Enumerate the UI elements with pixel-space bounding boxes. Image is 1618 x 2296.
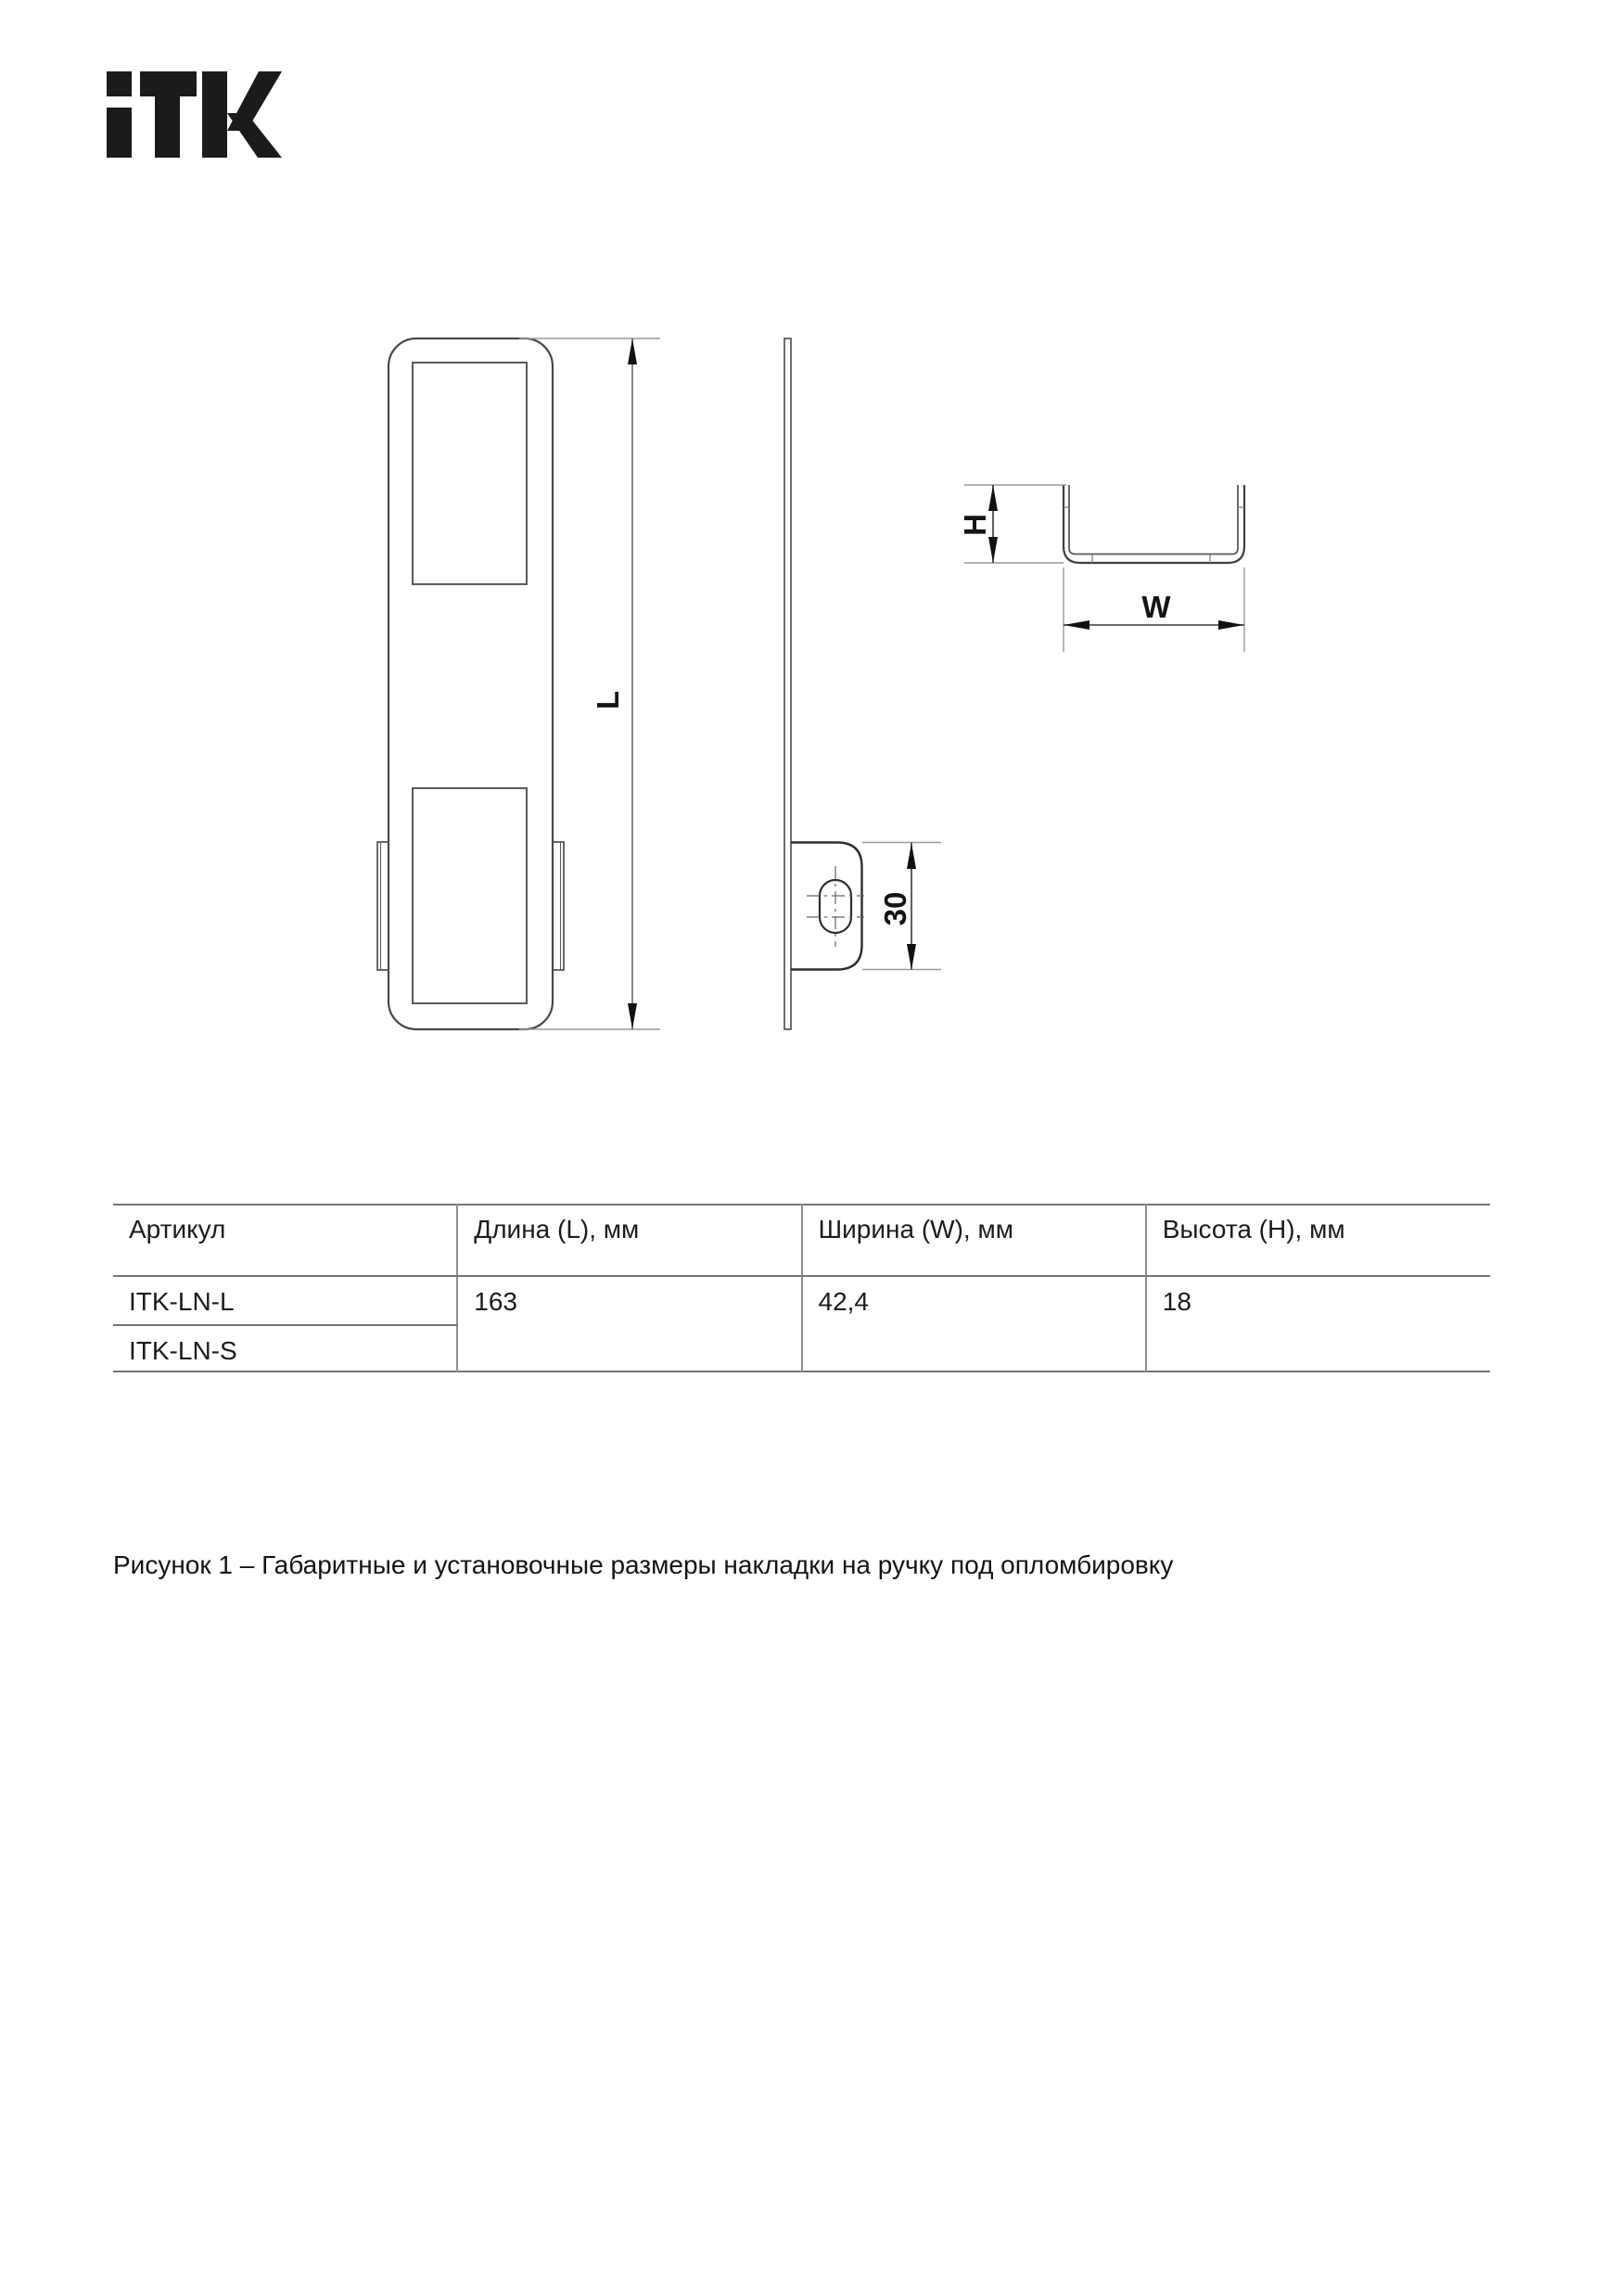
itk-logo: iTK bbox=[107, 71, 282, 158]
channel-outer bbox=[1064, 485, 1244, 563]
dim-label-height: H bbox=[958, 514, 992, 536]
cell-article-2: ITK-LN-S bbox=[113, 1325, 457, 1371]
table-header-row: Артикул Длина (L), мм Ширина (W), мм Выс… bbox=[113, 1205, 1490, 1276]
dimensions-table: Артикул Длина (L), мм Ширина (W), мм Выс… bbox=[113, 1204, 1490, 1372]
cell-height-value: 18 bbox=[1146, 1276, 1490, 1371]
table-row: ITK-LN-L 163 42,4 18 bbox=[113, 1276, 1490, 1325]
dimension-30: 30 bbox=[862, 843, 941, 971]
side-view-plate bbox=[784, 338, 791, 1029]
column-header-length: Длина (L), мм bbox=[457, 1205, 801, 1276]
figure-caption: Рисунок 1 – Габаритные и установочные ра… bbox=[113, 1550, 1173, 1580]
document-page: iTK bbox=[0, 0, 1618, 2296]
dim-label-tab-height: 30 bbox=[878, 892, 912, 926]
channel-inner bbox=[1069, 485, 1238, 555]
technical-drawing: iTK bbox=[0, 0, 1618, 1159]
section-view: H W bbox=[958, 485, 1244, 652]
cell-article-1: ITK-LN-L bbox=[113, 1276, 457, 1325]
dim-label-length: L bbox=[591, 691, 625, 709]
column-header-article: Артикул bbox=[113, 1205, 457, 1276]
dim-label-width: W bbox=[1141, 590, 1171, 624]
front-view: L bbox=[377, 338, 660, 1029]
cell-length-value: 163 bbox=[457, 1276, 801, 1371]
slot-centerlines bbox=[807, 866, 864, 947]
dimension-W: W bbox=[1064, 568, 1244, 652]
cell-width-value: 42,4 bbox=[802, 1276, 1146, 1371]
column-header-width: Ширина (W), мм bbox=[802, 1205, 1146, 1276]
dimension-H: H bbox=[958, 485, 1066, 563]
column-header-height: Высота (H), мм bbox=[1146, 1205, 1490, 1276]
side-view: 30 bbox=[784, 338, 941, 1029]
